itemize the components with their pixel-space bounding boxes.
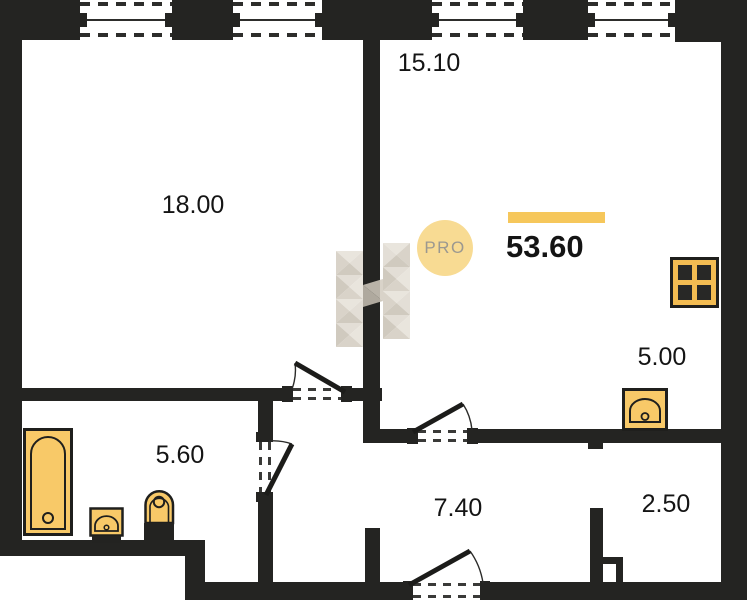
room-label-main: 15.10 — [387, 48, 471, 78]
floor-plan: PRO 53.60 18.00 15.10 5.00 5.60 7.40 2.5… — [0, 0, 747, 600]
wall — [185, 540, 205, 584]
wall — [488, 582, 723, 600]
wall — [322, 0, 432, 40]
washbasin-icon — [89, 507, 124, 543]
vent-shaft-icon — [590, 508, 603, 584]
room-label-hallway: 7.40 — [416, 493, 500, 523]
wall — [365, 528, 380, 584]
room-label-living: 18.00 — [151, 190, 235, 220]
accent-bar — [508, 212, 605, 223]
wall — [363, 38, 380, 443]
bathtub-icon — [23, 428, 73, 536]
wall — [258, 499, 273, 583]
wall — [0, 0, 22, 556]
pro-badge-label: PRO — [424, 238, 465, 258]
wall — [523, 0, 588, 40]
vent-shaft-icon — [616, 557, 623, 584]
toilet-icon — [143, 489, 176, 541]
wall — [588, 440, 603, 449]
total-area-value: 53.60 — [506, 229, 616, 265]
kitchen-sink-icon — [622, 388, 668, 431]
stove-icon — [670, 257, 719, 308]
room-label-kitchen: 5.00 — [620, 342, 704, 372]
watermark-logo — [336, 243, 410, 347]
pro-badge: PRO — [417, 220, 473, 276]
wall — [0, 388, 293, 401]
wall — [172, 0, 233, 40]
wall — [185, 582, 405, 600]
room-label-storage: 2.50 — [624, 489, 708, 519]
room-label-bathroom: 5.60 — [138, 440, 222, 470]
wall — [721, 0, 747, 600]
